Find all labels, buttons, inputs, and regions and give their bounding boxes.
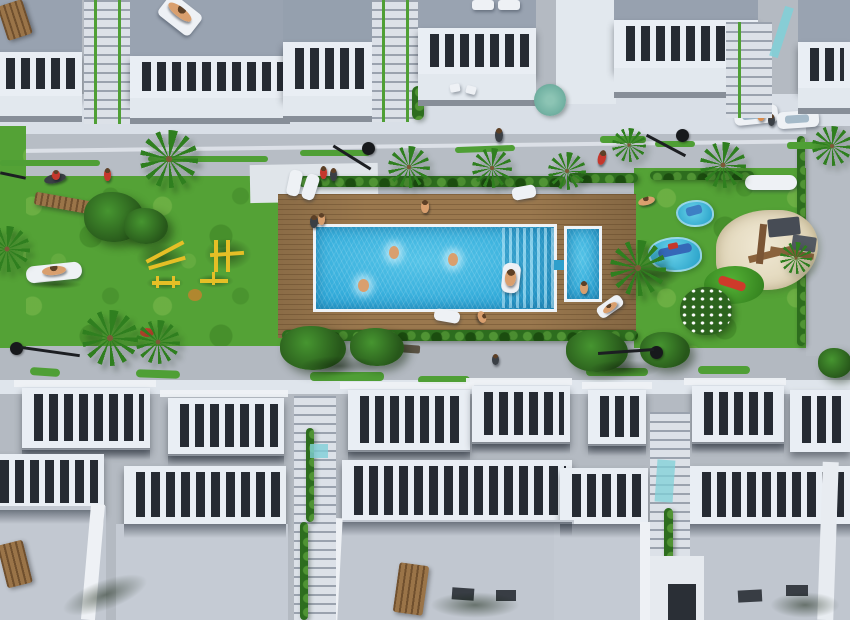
stairs-top-2-green-a — [382, 0, 385, 122]
roof-vent-3 — [738, 589, 763, 602]
terrace-row1-7 — [790, 390, 850, 452]
stairs-top-1-green-a — [94, 0, 97, 124]
aerial-render-scene — [0, 0, 850, 620]
building-m3-facade — [283, 96, 373, 122]
palm-top-walkway-5 — [612, 128, 646, 162]
parapet-row1-1 — [14, 380, 156, 387]
stairs-top-1 — [84, 0, 130, 124]
palm-right-garden — [610, 240, 666, 296]
person-red-top-1 — [104, 168, 111, 181]
building-m2-terrace — [130, 56, 290, 100]
shade-row2-3 — [342, 522, 572, 536]
person-red-top-2 — [320, 166, 327, 179]
roof-shadow-3 — [770, 592, 840, 618]
hedge-strip-bottom-2 — [136, 369, 180, 379]
terrace-row2-2 — [124, 466, 286, 526]
tree-shadow-bottom-1 — [300, 356, 380, 376]
palm-sapling-sand — [780, 242, 812, 274]
palm-top-walkway-1 — [140, 130, 198, 188]
parapet-row1-6 — [684, 378, 786, 385]
palm-top-walkway-2 — [388, 146, 430, 188]
shade-row2-4 — [560, 524, 648, 538]
terrace-row1-6 — [692, 386, 784, 444]
terrace-row1-5 — [588, 390, 646, 446]
building-m1-facade — [0, 96, 82, 122]
building-m6-roof — [798, 0, 850, 42]
person-deck-top — [421, 200, 429, 213]
roof-lounger-pair-1 — [472, 0, 494, 10]
shade-row1-4 — [472, 442, 570, 454]
building-m2-roof — [130, 0, 290, 58]
stairs-top-3-green — [738, 22, 741, 118]
building-m1-terrace — [0, 52, 82, 98]
terrace-row2-1 — [0, 454, 104, 512]
palm-left-garden-2 — [136, 320, 180, 364]
flower-bush — [680, 287, 732, 335]
parked-car-2-window — [785, 114, 809, 124]
person-dark-top-2 — [495, 128, 503, 142]
stairs-top-2-green-b — [406, 0, 409, 122]
parapet-row1-4 — [466, 378, 572, 385]
parapet-row1-3 — [340, 382, 474, 389]
building-m3-roof — [283, 0, 373, 42]
stairs-top-3 — [726, 22, 772, 118]
stairs-bottom-2-glass — [655, 459, 676, 502]
palm-top-walkway-7 — [812, 126, 850, 166]
building-m3-terrace — [283, 42, 373, 98]
hedge-strip-bottom-6 — [698, 366, 750, 374]
playground-bars-c2 — [156, 276, 159, 288]
building-m4-facade — [418, 74, 536, 106]
building-m5-roof — [614, 0, 758, 22]
building-m6-terrace — [798, 42, 850, 90]
person-pool-corner-1 — [310, 215, 318, 228]
stairs-bottom-1-glass — [310, 444, 328, 458]
lamp-top-2 — [676, 129, 689, 142]
terrace-chair-1 — [449, 83, 460, 93]
terrace-row1-2 — [168, 398, 284, 456]
playground-bars-d2 — [212, 272, 215, 285]
swimmer-3 — [358, 279, 369, 292]
stairs-bottom-1-planting-b — [300, 522, 308, 620]
roof-lounger-pair-2 — [498, 0, 520, 10]
shade-row1-2 — [168, 454, 284, 466]
terrace-row2-4 — [560, 468, 648, 526]
stairwell-opening — [668, 584, 696, 620]
building-m4-terrace — [418, 28, 536, 76]
building-m5-side — [556, 0, 616, 104]
terrace-row1-1 — [22, 388, 150, 450]
swimmer-1 — [389, 246, 399, 259]
person-dark-top-1 — [330, 168, 337, 181]
playground-bars-c3 — [172, 276, 175, 288]
parapet-row1-2 — [160, 390, 288, 397]
terrace-row1-3 — [348, 390, 470, 452]
person-deck-walking — [580, 281, 588, 294]
roof-shadow-2 — [430, 592, 520, 618]
hedge-strip-top-1 — [0, 160, 100, 166]
tree-shadow-bottom-2 — [590, 360, 660, 378]
patio-umbrella-teal — [534, 84, 566, 116]
hedge-strip-top-3 — [300, 150, 370, 156]
terrace-row2-3 — [342, 460, 572, 524]
palm-left-garden-1 — [82, 310, 138, 366]
hammock-shadow — [30, 280, 82, 289]
terrace-row1-4 — [472, 386, 570, 444]
shade-row1-6 — [692, 442, 784, 454]
palm-top-walkway-3 — [472, 148, 512, 188]
bench-bottom-walkway — [402, 344, 421, 353]
building-m6-facade — [798, 88, 850, 114]
lamp-top-1 — [362, 142, 375, 155]
shade-row2-2 — [124, 524, 286, 538]
person-bottom-walkway — [492, 354, 499, 365]
cyclist-rider — [52, 170, 60, 180]
garden-bench-white — [745, 175, 797, 190]
tree-bottom-walkway-5 — [818, 348, 850, 378]
palm-top-walkway-4 — [548, 152, 586, 190]
person-pool-corner-2 — [318, 213, 325, 225]
shade-row1-5 — [588, 444, 646, 456]
palm-top-walkway-6 — [700, 142, 746, 188]
stairs-top-1-green-b — [118, 0, 121, 124]
parapet-row1-5 — [582, 382, 652, 389]
spring-toy — [188, 289, 202, 301]
swimmer-2 — [448, 253, 458, 266]
shade-row2-1 — [0, 510, 104, 524]
building-m2-facade — [130, 98, 290, 124]
stairs-bottom-1-planting-a — [306, 428, 314, 522]
tree-left-garden-2 — [124, 208, 168, 244]
